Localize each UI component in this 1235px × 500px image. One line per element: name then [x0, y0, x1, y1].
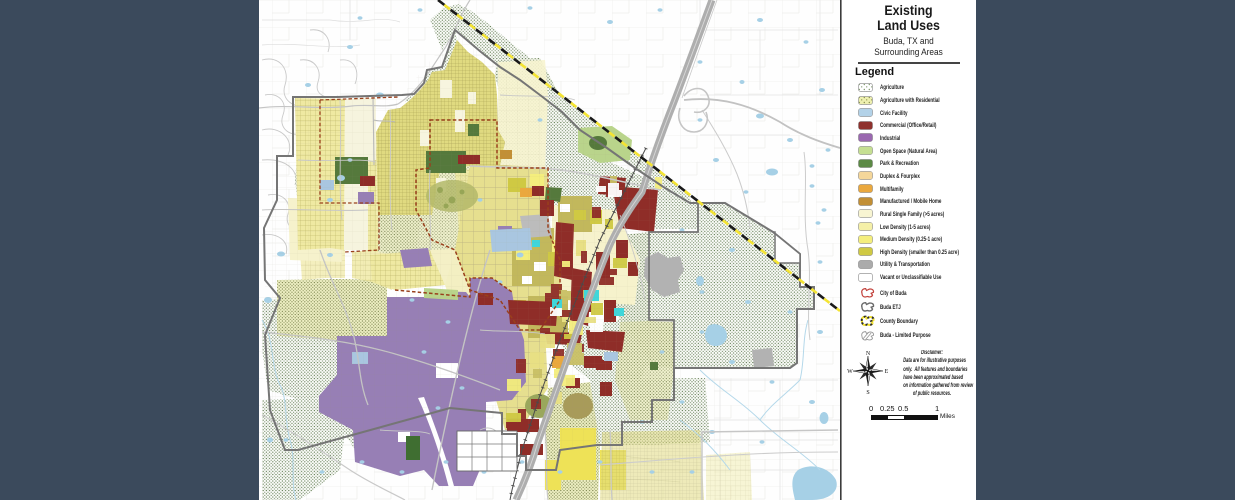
svg-text:W: W: [847, 369, 853, 375]
svg-text:E: E: [885, 369, 889, 375]
svg-text:S: S: [866, 390, 869, 396]
svg-text:N: N: [866, 351, 871, 357]
